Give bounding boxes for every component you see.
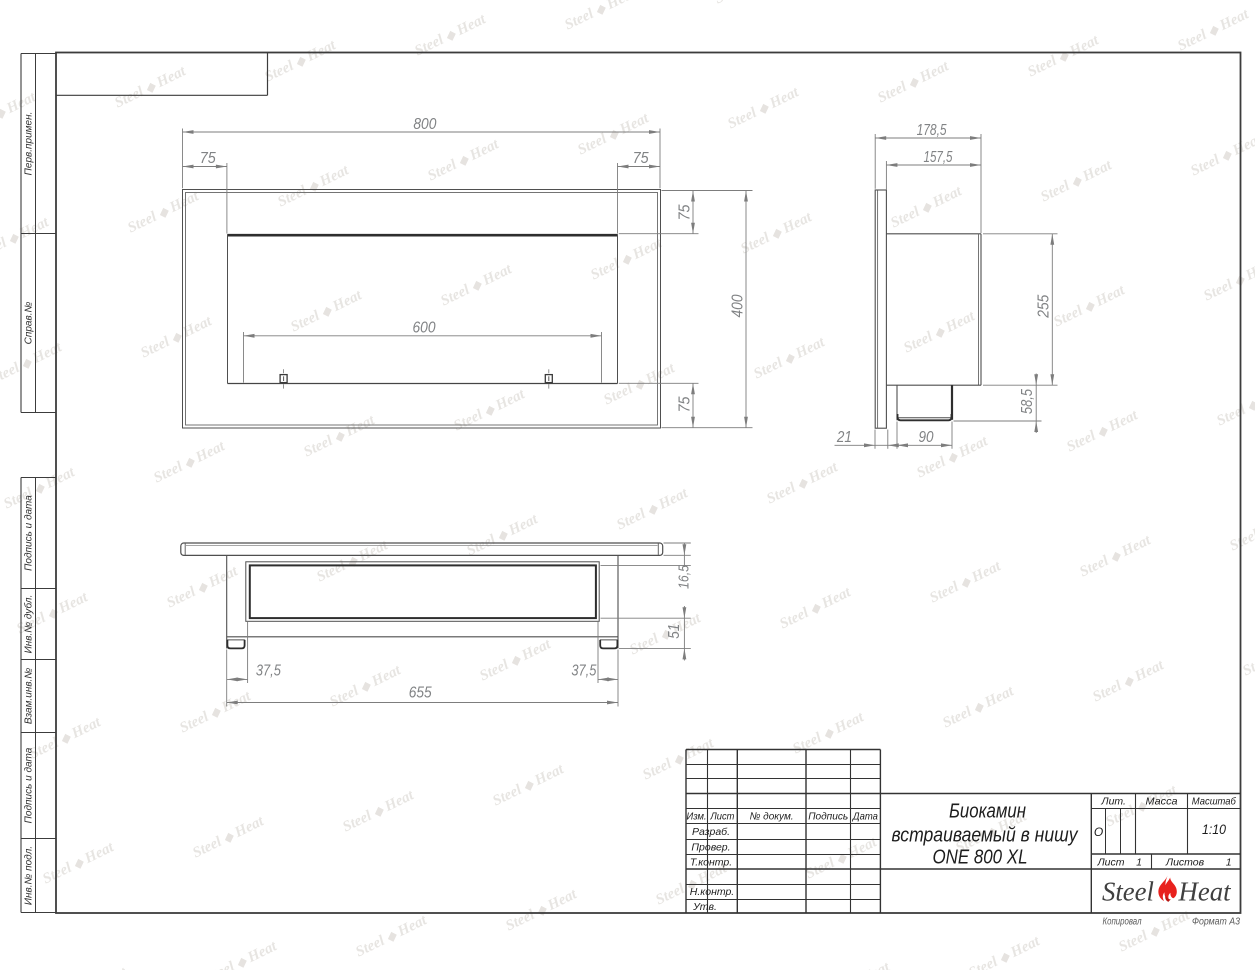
svg-text:Биокамин: Биокамин [949,801,1026,823]
svg-text:75: 75 [633,150,649,167]
svg-text:О: О [1094,825,1103,839]
svg-text:1:10: 1:10 [1202,822,1226,837]
svg-text:16,5: 16,5 [676,564,693,589]
svg-text:Heat: Heat [1178,877,1232,907]
svg-text:Инв.№ дубл.: Инв.№ дубл. [22,595,34,654]
svg-text:№ докум.: № докум. [750,811,794,823]
svg-text:Steel: Steel [1102,877,1154,907]
svg-text:21: 21 [836,429,852,446]
svg-text:58,5: 58,5 [1019,389,1036,414]
svg-text:Перв.примен.: Перв.примен. [23,112,34,176]
svg-text:Масштаб: Масштаб [1192,796,1237,808]
svg-text:Справ.№: Справ.№ [23,301,34,344]
svg-text:встраиваемый в нишу: встраиваемый в нишу [892,825,1079,847]
svg-text:51: 51 [666,624,683,639]
svg-text:37,5: 37,5 [256,663,281,680]
svg-text:Разраб.: Разраб. [692,826,730,838]
svg-text:Н.контр.: Н.контр. [690,886,734,898]
svg-text:90: 90 [919,429,934,446]
svg-text:Лит.: Лит. [1100,796,1126,808]
svg-text:400: 400 [729,294,746,317]
svg-text:Дата: Дата [852,811,878,823]
svg-text:Утв.: Утв. [692,901,717,913]
svg-text:75: 75 [200,150,216,167]
svg-text:Подпись и дата: Подпись и дата [23,495,34,571]
svg-text:178,5: 178,5 [917,122,947,139]
svg-text:Масса: Масса [1146,796,1178,808]
svg-text:255: 255 [1036,295,1053,319]
svg-text:Копировал: Копировал [1103,917,1142,928]
svg-text:Формат А3: Формат А3 [1192,917,1240,928]
svg-text:Подпись: Подпись [808,811,848,823]
svg-text:75: 75 [676,396,693,412]
svg-text:1: 1 [1226,857,1232,869]
svg-text:800: 800 [413,116,436,133]
svg-text:Т.контр.: Т.контр. [690,857,732,869]
svg-text:1: 1 [1136,857,1142,869]
svg-text:Листов: Листов [1165,857,1205,869]
svg-text:75: 75 [676,204,693,220]
svg-text:Провер.: Провер. [691,842,730,854]
svg-text:Взам.инв.№: Взам.инв.№ [23,668,34,724]
svg-text:Лист: Лист [710,811,735,823]
svg-text:Инв.№ подл.: Инв.№ подл. [23,846,34,905]
svg-text:37,5: 37,5 [571,663,596,680]
svg-text:655: 655 [409,685,432,702]
svg-text:Лист: Лист [1096,857,1124,869]
svg-text:Подпись и дата: Подпись и дата [23,747,34,823]
svg-text:ONE 800 XL: ONE 800 XL [933,847,1028,869]
svg-text:157,5: 157,5 [924,149,953,166]
svg-text:600: 600 [413,320,436,337]
svg-text:Изм.: Изм. [687,811,707,823]
